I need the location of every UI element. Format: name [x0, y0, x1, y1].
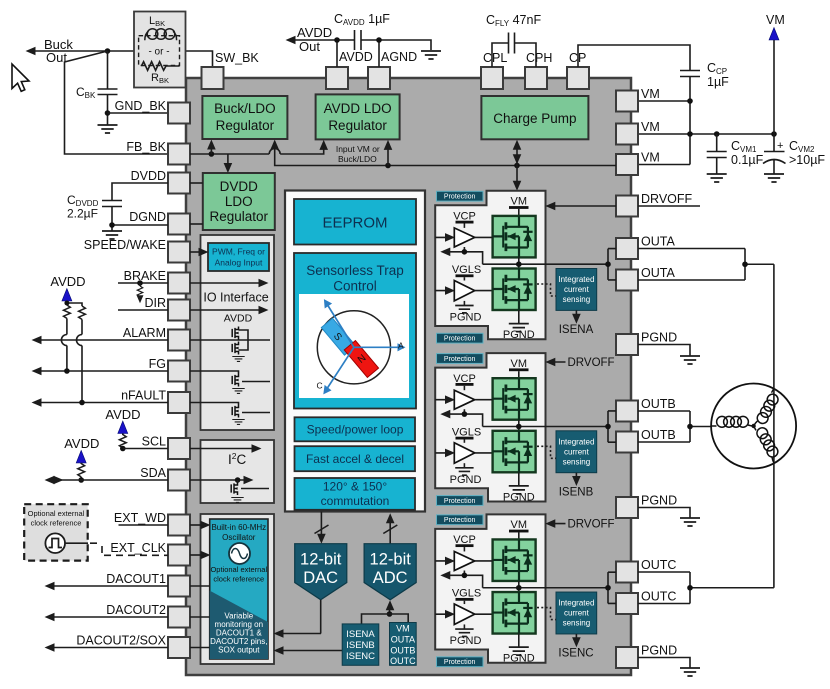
- svg-text:SW_BK: SW_BK: [215, 51, 259, 65]
- svg-text:sensing: sensing: [563, 295, 591, 304]
- svg-text:EXT_WD: EXT_WD: [114, 511, 166, 525]
- svg-text:PGND: PGND: [641, 644, 677, 658]
- svg-text:DRVOFF: DRVOFF: [641, 192, 693, 206]
- svg-text:Regulator: Regulator: [216, 118, 275, 133]
- svg-text:AVDD LDO: AVDD LDO: [324, 101, 392, 116]
- svg-text:Control: Control: [333, 279, 377, 294]
- svg-text:Analog Input: Analog Input: [215, 258, 263, 268]
- svg-text:SPEED/WAKE: SPEED/WAKE: [84, 238, 166, 252]
- svg-text:Speed/power loop: Speed/power loop: [307, 423, 404, 437]
- svg-text:Charge Pump: Charge Pump: [493, 111, 576, 126]
- svg-text:12-bit: 12-bit: [300, 551, 342, 569]
- svg-text:nFAULT: nFAULT: [121, 389, 166, 403]
- svg-text:CFLY 47nF: CFLY 47nF: [486, 13, 541, 28]
- svg-text:AVDD: AVDD: [297, 25, 332, 40]
- svg-text:DACOUT1: DACOUT1: [106, 572, 166, 586]
- svg-text:Optional external: Optional external: [28, 509, 85, 518]
- svg-text:OUTC: OUTC: [390, 656, 416, 666]
- svg-text:12-bit: 12-bit: [370, 551, 412, 569]
- svg-text:clock reference: clock reference: [31, 519, 82, 528]
- svg-text:+: +: [777, 140, 783, 152]
- svg-text:AVDD: AVDD: [50, 274, 85, 289]
- svg-text:ALARM: ALARM: [123, 326, 166, 340]
- svg-text:ADC: ADC: [373, 569, 408, 587]
- svg-text:Input VM or: Input VM or: [336, 144, 380, 154]
- svg-text:CPH: CPH: [526, 51, 552, 65]
- svg-text:FG: FG: [149, 357, 166, 371]
- svg-text:DACOUT2/SOX: DACOUT2/SOX: [76, 634, 166, 648]
- svg-text:AVDD: AVDD: [224, 313, 253, 325]
- svg-text:DAC: DAC: [303, 569, 338, 587]
- svg-text:DRVOFF: DRVOFF: [568, 357, 615, 369]
- svg-text:2.2µF: 2.2µF: [67, 207, 98, 221]
- svg-text:DIR: DIR: [144, 296, 166, 310]
- svg-text:1µF: 1µF: [707, 75, 729, 89]
- svg-text:VM: VM: [766, 13, 785, 27]
- svg-text:Oscillator: Oscillator: [222, 533, 256, 542]
- svg-text:commutation: commutation: [321, 494, 390, 508]
- svg-text:Protection: Protection: [444, 336, 476, 343]
- svg-text:PWM, Freq or: PWM, Freq or: [212, 247, 265, 257]
- svg-text:0.1µF: 0.1µF: [731, 153, 764, 167]
- svg-text:VM: VM: [511, 196, 528, 208]
- svg-text:Protection: Protection: [444, 194, 476, 201]
- svg-text:Regulator: Regulator: [210, 209, 269, 224]
- svg-text:EXT_CLK: EXT_CLK: [110, 541, 166, 555]
- svg-text:ISENB: ISENB: [559, 486, 594, 498]
- svg-text:Regulator: Regulator: [328, 118, 387, 133]
- svg-text:VGLS: VGLS: [452, 264, 481, 276]
- svg-text:AVDD: AVDD: [105, 407, 140, 422]
- svg-text:SCL: SCL: [142, 435, 166, 449]
- svg-text:A: A: [398, 341, 404, 351]
- svg-text:- or -: - or -: [148, 47, 169, 58]
- svg-text:DGND: DGND: [129, 210, 166, 224]
- svg-text:OUTC: OUTC: [641, 558, 676, 572]
- svg-text:OUTC: OUTC: [641, 590, 676, 604]
- svg-text:AVDD: AVDD: [339, 50, 373, 64]
- svg-text:ISENB: ISENB: [346, 640, 375, 651]
- svg-text:OUTB: OUTB: [390, 646, 415, 656]
- svg-text:AGND: AGND: [381, 50, 417, 64]
- svg-text:DACOUT2: DACOUT2: [106, 603, 166, 617]
- svg-text:AVDD: AVDD: [64, 436, 99, 451]
- svg-text:EEPROM: EEPROM: [322, 215, 387, 232]
- svg-text:Integrated: Integrated: [558, 275, 594, 284]
- svg-text:Out: Out: [299, 39, 320, 54]
- svg-text:DVDD: DVDD: [131, 169, 166, 183]
- svg-text:Fast accel & decel: Fast accel & decel: [306, 452, 404, 466]
- svg-text:PGND: PGND: [641, 331, 677, 345]
- svg-text:VM: VM: [641, 87, 660, 101]
- svg-text:Built-in 60-MHz: Built-in 60-MHz: [211, 523, 266, 532]
- svg-text:FB_BK: FB_BK: [126, 140, 166, 154]
- svg-text:Buck/LDO: Buck/LDO: [338, 154, 377, 164]
- svg-text:OUTA: OUTA: [641, 266, 675, 280]
- svg-text:ISENC: ISENC: [558, 648, 593, 660]
- svg-text:current: current: [564, 285, 590, 294]
- svg-text:Sensorless Trap: Sensorless Trap: [306, 263, 404, 278]
- svg-text:ISENC: ISENC: [346, 651, 375, 662]
- svg-text:PGND: PGND: [641, 494, 677, 508]
- svg-text:CPL: CPL: [483, 51, 507, 65]
- svg-text:clock reference: clock reference: [213, 575, 264, 584]
- svg-text:VM: VM: [641, 151, 660, 165]
- svg-text:DRVOFF: DRVOFF: [568, 519, 615, 531]
- svg-text:120° & 150°: 120° & 150°: [323, 480, 388, 494]
- svg-text:ISENA: ISENA: [346, 629, 375, 640]
- svg-text:SDA: SDA: [140, 466, 166, 480]
- svg-text:OUTB: OUTB: [641, 428, 676, 442]
- svg-text:OUTB: OUTB: [641, 397, 676, 411]
- svg-text:I2C: I2C: [228, 451, 247, 467]
- svg-text:C: C: [317, 381, 323, 391]
- svg-text:IO Interface: IO Interface: [203, 291, 268, 305]
- svg-text:DVDD: DVDD: [220, 179, 259, 194]
- svg-text:GND_BK: GND_BK: [115, 99, 167, 113]
- svg-text:LDO: LDO: [225, 194, 253, 209]
- svg-text:Buck/LDO: Buck/LDO: [214, 101, 276, 116]
- svg-text:OUTA: OUTA: [391, 635, 415, 645]
- svg-text:BRAKE: BRAKE: [124, 269, 166, 283]
- svg-text:VM: VM: [641, 120, 660, 134]
- svg-text:ISENA: ISENA: [559, 324, 594, 336]
- svg-text:SOX output: SOX output: [218, 646, 260, 655]
- svg-text:VM: VM: [396, 624, 410, 634]
- svg-text:>10µF: >10µF: [789, 153, 825, 167]
- svg-text:PGND: PGND: [503, 329, 535, 341]
- svg-text:PGND: PGND: [450, 312, 482, 324]
- svg-text:Optional external: Optional external: [210, 565, 267, 574]
- svg-text:OUTA: OUTA: [641, 235, 675, 249]
